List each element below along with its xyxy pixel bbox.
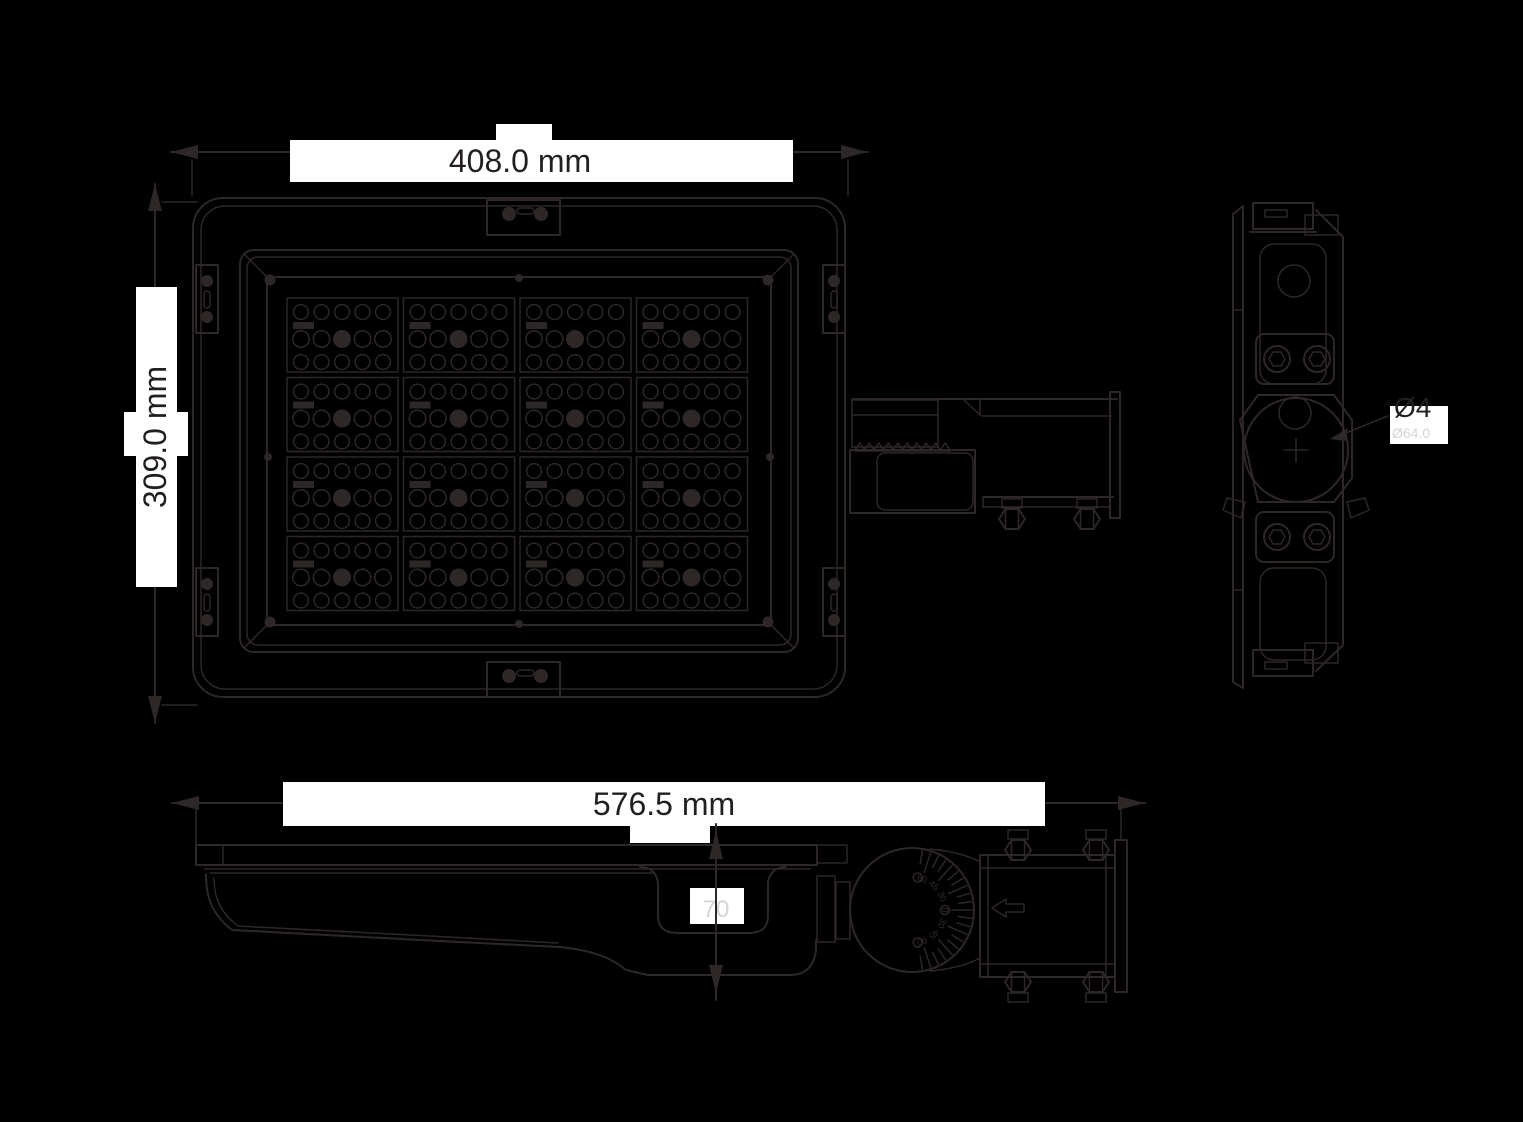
dial-tick [933, 856, 939, 868]
aiming-angle-dial: 6045300304560 [850, 848, 980, 972]
dim-arrow-right [841, 145, 868, 159]
tab-left-lower [196, 568, 218, 636]
mounting-knuckle [1223, 395, 1369, 518]
tab-bottom [487, 662, 560, 697]
dial-tick [933, 952, 939, 964]
dim-arrow-up [148, 184, 162, 211]
knuckle-diameter-callout: Ø4 Ø64.0 [1330, 392, 1448, 444]
dial-tick [949, 886, 967, 894]
dim-arrow-down [148, 696, 162, 723]
dimension-arm-height: 70 [690, 824, 744, 1000]
tab-left-upper [196, 265, 218, 333]
dimension-height: 309.0 mm [124, 184, 197, 723]
dial-tick [957, 893, 969, 897]
dial-tick [957, 923, 969, 927]
dial-tick [924, 853, 930, 872]
led-module [520, 298, 631, 372]
led-module [404, 457, 515, 531]
dial-tick [952, 878, 963, 885]
led-module [404, 537, 515, 611]
dim-arrow-down [709, 965, 723, 993]
dial-tick [949, 926, 967, 934]
dial-degree-label: 30 [936, 917, 949, 930]
length-dimension-label: 576.5 mm [593, 786, 735, 822]
dial-tick [938, 860, 945, 871]
leader-arrowhead [1330, 428, 1348, 441]
tab-right-lower [823, 568, 845, 636]
side-view [1223, 203, 1369, 688]
dial-tick [920, 956, 922, 969]
led-module [520, 457, 631, 531]
wire-port [1278, 265, 1310, 297]
dim-arrow-left [172, 796, 199, 810]
tab-right-upper [823, 265, 845, 333]
profile-view: 6045300304560 [196, 830, 1127, 1002]
led-module [404, 298, 515, 372]
dial-tick [959, 917, 972, 919]
dial-tick [924, 948, 930, 967]
led-grid [287, 298, 748, 611]
led-module [637, 457, 748, 531]
led-module [287, 298, 398, 372]
dial-tick [948, 871, 958, 879]
led-module [287, 537, 398, 611]
dim-arrow-right [1118, 796, 1145, 810]
led-module [637, 537, 748, 611]
mounting-arm-plan [850, 392, 1120, 529]
dial-tick [948, 940, 958, 948]
slip-fitter-bracket [980, 830, 1127, 1002]
height-dimension-label: 309.0 mm [137, 366, 173, 508]
side-bolt-4 [1304, 524, 1330, 550]
technical-drawing-canvas: 408.0 mm 309.0 mm [0, 0, 1523, 1122]
insert-direction-arrow [992, 899, 1024, 917]
dial-degree-label: 30 [936, 890, 949, 903]
led-module [637, 378, 748, 452]
led-module [404, 378, 515, 452]
bracket-end-plate [1115, 840, 1127, 992]
width-dimension-label: 408.0 mm [449, 143, 591, 179]
dial-tick-scale: 6045300304560 [913, 851, 972, 969]
knuckle-diameter-label: Ø4 [1394, 392, 1431, 423]
side-bolt-3 [1264, 524, 1290, 550]
dial-tick [938, 949, 945, 960]
led-module [520, 378, 631, 452]
led-module [520, 537, 631, 611]
front-view [193, 198, 845, 697]
dimension-width: 408.0 mm [171, 124, 868, 196]
led-module [287, 378, 398, 452]
arm-bolt-2 [1074, 499, 1100, 529]
side-bolt-1 [1264, 346, 1290, 372]
dial-tick [952, 935, 963, 942]
dial-degree-label: 0 [940, 907, 950, 912]
arm-end-plate [1110, 392, 1120, 518]
led-module [287, 457, 398, 531]
arm-bolt-1 [999, 499, 1025, 529]
dimension-length: 576.5 mm [172, 782, 1145, 844]
led-module [637, 298, 748, 372]
dial-tick [959, 902, 972, 904]
dial-degree-label: 60 [916, 872, 929, 885]
dial-tick [920, 851, 922, 864]
luminaire-dimension-drawing: 408.0 mm 309.0 mm [0, 0, 1523, 1122]
knuckle-diameter-faint-label: Ø64.0 [1392, 425, 1430, 441]
dim-arrow-left [171, 145, 198, 159]
